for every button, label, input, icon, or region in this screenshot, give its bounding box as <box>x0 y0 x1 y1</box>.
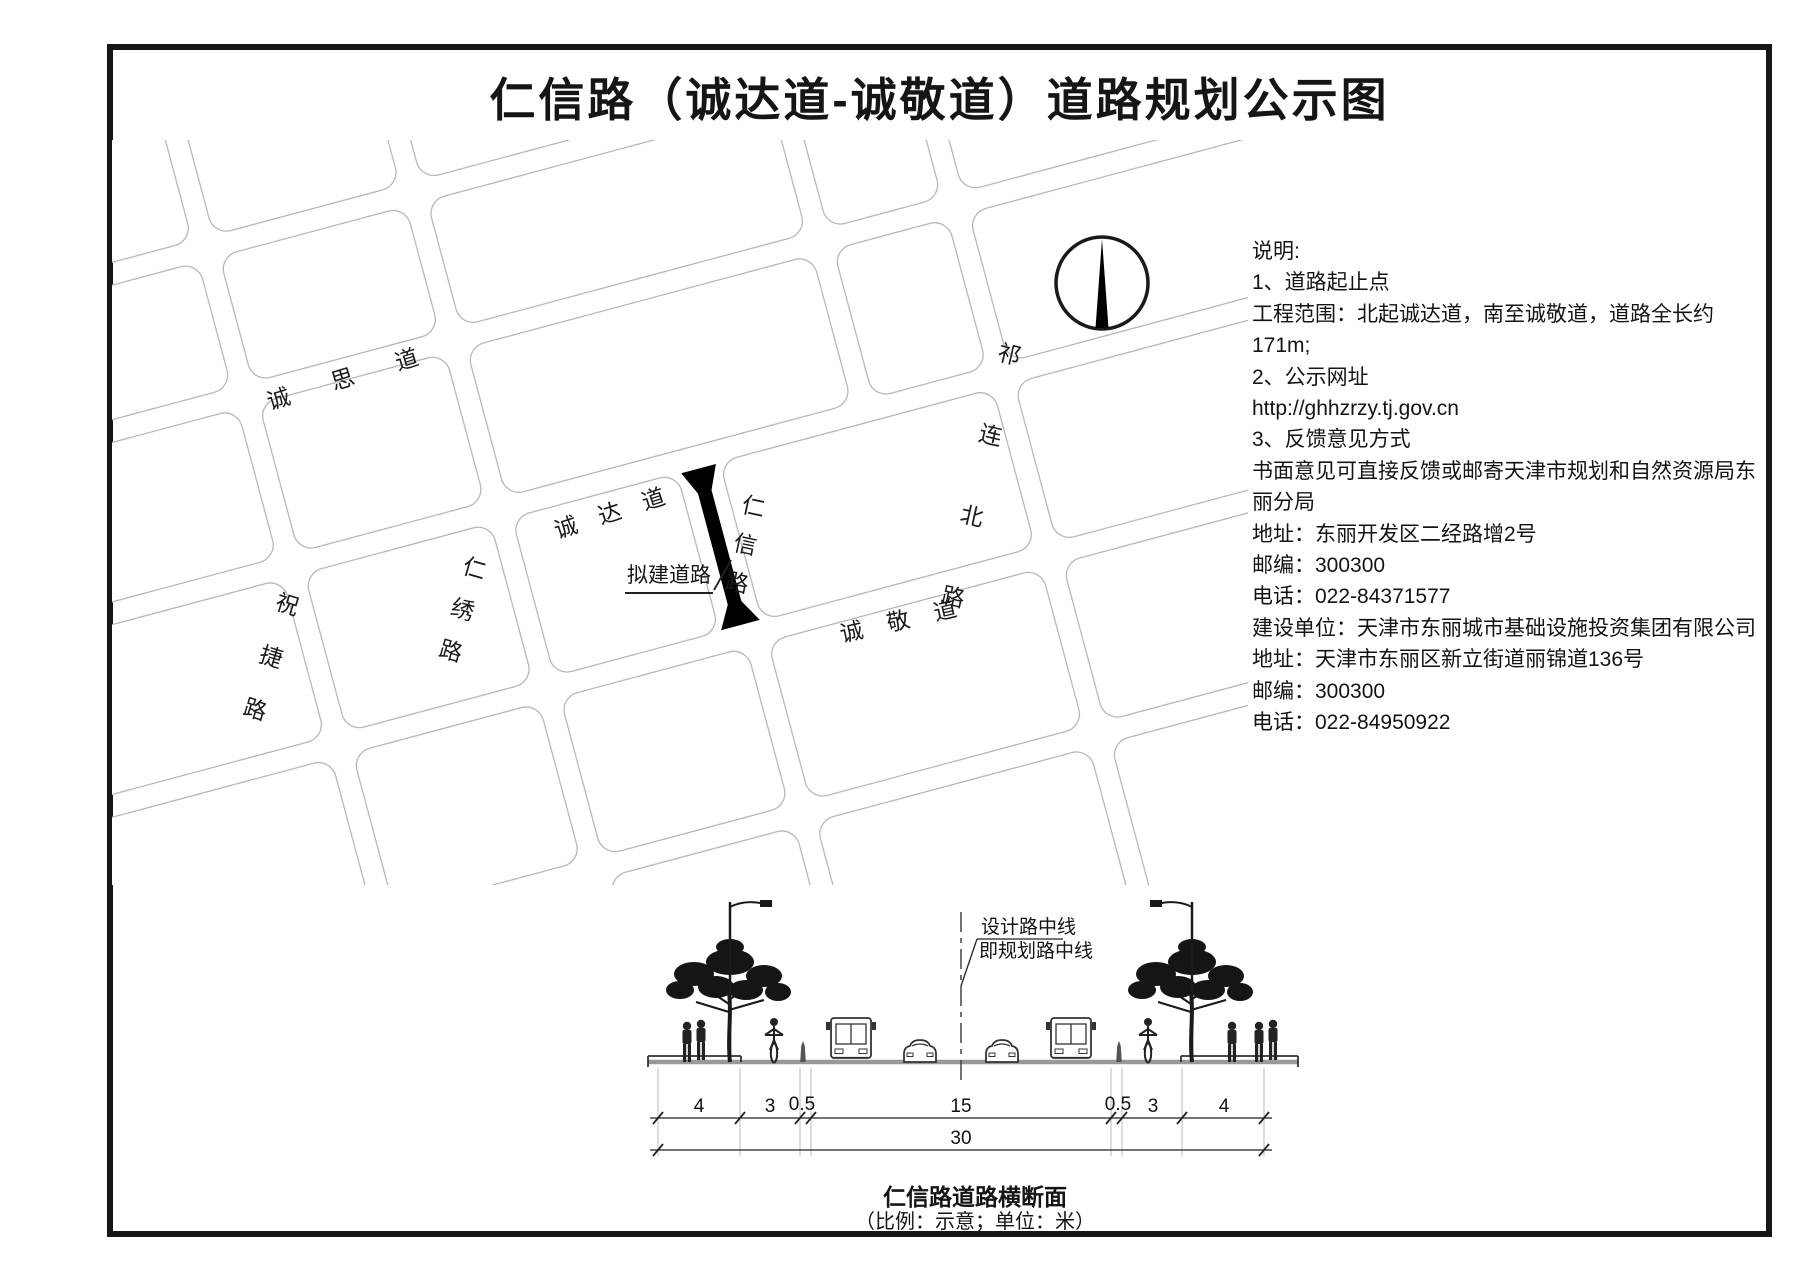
planning-notice-page: 仁信路（诚达道-诚敬道）道路规划公示图 <box>0 0 1811 1280</box>
note-line: 地址：东丽开发区二经路增2号 <box>1252 519 1772 550</box>
centerline-label-2: 即规划路中线 <box>979 940 1093 962</box>
note-line: 工程范围：北起诚达道，南至诚敬道，道路全长约171m; <box>1252 299 1772 362</box>
bollard-left <box>800 1041 806 1062</box>
note-line: 地址：天津市东丽区新立街道丽锦道136号 <box>1252 644 1772 675</box>
note-line: 电话：022-84950922 <box>1252 707 1772 738</box>
centerline-label-1: 设计路中线 <box>981 916 1076 938</box>
note-line: 电话：022-84371577 <box>1252 581 1772 612</box>
cyclist-right <box>1139 1018 1157 1063</box>
notes-block: 说明: 1、道路起止点 工程范围：北起诚达道，南至诚敬道，道路全长约171m; … <box>1252 236 1772 739</box>
note-line: 邮编：300300 <box>1252 676 1772 707</box>
dim-carriageway: 15 <box>950 1096 971 1117</box>
note-line: 丽分局 <box>1252 487 1772 518</box>
note-line: 说明: <box>1252 236 1772 267</box>
car-right <box>986 1040 1018 1062</box>
car-left <box>904 1040 936 1062</box>
dim-sidewalk-left: 4 <box>694 1096 705 1117</box>
cross-section-figure: 设计路中线 即规划路中线 4 3 <box>648 900 1298 1156</box>
bus-left <box>826 1018 876 1058</box>
dim-total-width: 30 <box>950 1128 971 1149</box>
note-line: 邮编：300300 <box>1252 550 1772 581</box>
note-line-url: http://ghhzrzy.tj.gov.cn <box>1252 393 1772 424</box>
dim-cycle-right: 3 <box>1148 1096 1159 1117</box>
bus-right <box>1046 1018 1096 1058</box>
proposed-road-label: 拟建道路 <box>625 559 713 594</box>
cross-section-caption-note: （比例：示意；单位：米） <box>700 1205 1250 1234</box>
north-arrow-icon <box>1056 237 1148 329</box>
dim-buffer-left: 0.5 <box>789 1094 815 1115</box>
cyclist-left <box>765 1018 783 1063</box>
dim-cycle-left: 3 <box>765 1096 776 1117</box>
bollard-right <box>1116 1041 1122 1062</box>
note-line: 建设单位：天津市东丽城市基础设施投资集团有限公司 <box>1252 613 1772 644</box>
note-line: 3、反馈意见方式 <box>1252 424 1772 455</box>
note-line: 1、道路起止点 <box>1252 267 1772 298</box>
dim-buffer-right: 0.5 <box>1105 1094 1131 1115</box>
note-line: 2、公示网址 <box>1252 362 1772 393</box>
dimension-line-total: 30 <box>650 1128 1272 1156</box>
dim-sidewalk-right: 4 <box>1219 1096 1230 1117</box>
dimension-line-segments: 4 3 0.5 15 0.5 3 4 <box>650 1094 1272 1124</box>
note-line: 书面意见可直接反馈或邮寄天津市规划和自然资源局东 <box>1252 456 1772 487</box>
